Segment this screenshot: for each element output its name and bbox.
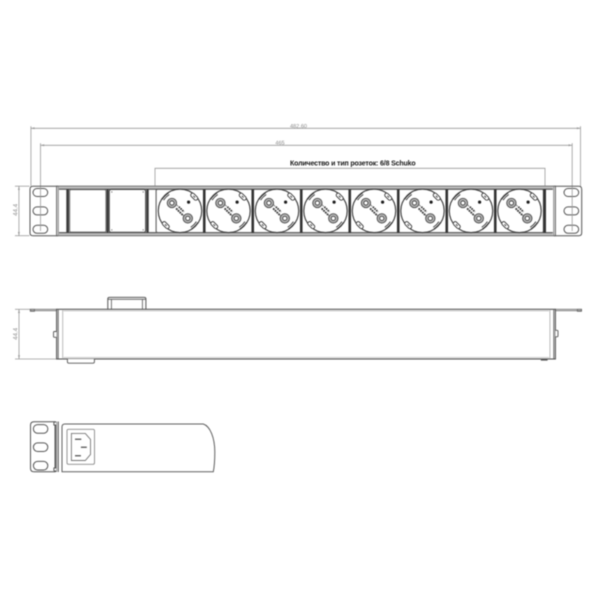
svg-text:482,60: 482,60	[290, 124, 307, 130]
svg-text:44.4: 44.4	[13, 203, 20, 216]
svg-text:Количество и тип розеток: 6/8: Количество и тип розеток: 6/8 Schuko	[290, 160, 416, 167]
svg-text:44.4: 44.4	[12, 327, 19, 340]
svg-text:465: 465	[275, 141, 284, 147]
